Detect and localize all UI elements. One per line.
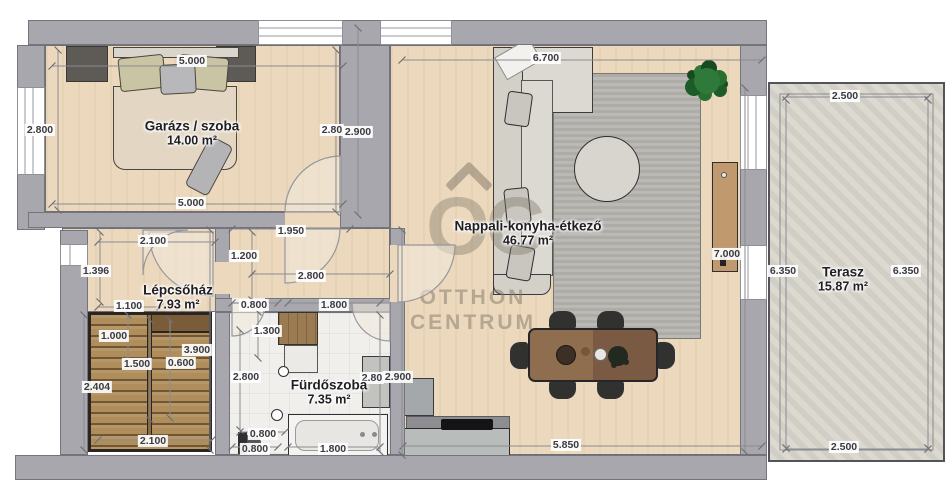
window-left-staircase bbox=[60, 244, 88, 266]
room-area: 7.35 m² bbox=[291, 393, 368, 407]
window-top-garage bbox=[258, 20, 343, 45]
staircase-rail bbox=[147, 315, 152, 435]
dimension-label: 1.950 bbox=[276, 225, 306, 237]
room-area: 46.77 m² bbox=[454, 234, 601, 248]
table-small-plate bbox=[581, 347, 590, 356]
room-area: 14.00 m² bbox=[145, 134, 240, 148]
dimension-label: 2.80 bbox=[320, 124, 344, 136]
dining-chair bbox=[510, 342, 528, 369]
door-opening-staircase bbox=[215, 262, 230, 294]
room-name: Fürdőszoba bbox=[291, 378, 368, 393]
dimension-label: 5.000 bbox=[176, 197, 206, 209]
dimension-label: 5.850 bbox=[551, 439, 581, 451]
dining-chair bbox=[549, 381, 576, 399]
room-label-garage: Garázs / szoba14.00 m² bbox=[145, 119, 240, 148]
watermark-line2: CENTRUM bbox=[398, 311, 548, 335]
room-label-bathroom: Fürdőszoba7.35 m² bbox=[291, 378, 368, 407]
floor-plan: OC OTTHON CENTRUM bbox=[0, 0, 947, 500]
dimension-label: 0.800 bbox=[248, 428, 278, 440]
sink-knob bbox=[278, 366, 289, 377]
room-name: Nappali-konyha-étkező bbox=[454, 219, 601, 234]
bed-pillow-center bbox=[159, 63, 197, 95]
terrace-door bbox=[740, 245, 767, 300]
table-centerpiece-plant bbox=[608, 346, 628, 366]
dining-chair bbox=[549, 311, 576, 329]
table-plate bbox=[556, 345, 576, 365]
dimension-label: 6.700 bbox=[531, 52, 561, 64]
dining-chair bbox=[657, 342, 675, 369]
dimension-label: 2.404 bbox=[82, 381, 112, 393]
dimension-label: 2.900 bbox=[343, 126, 373, 138]
dimension-label: 2.500 bbox=[830, 90, 860, 102]
bathtub-faucet-dot bbox=[372, 432, 377, 437]
room-name: Terasz bbox=[818, 265, 868, 280]
plant-icon bbox=[694, 68, 720, 94]
watermark-line1: OTTHON bbox=[398, 286, 548, 310]
staircase-landing bbox=[152, 315, 209, 333]
dimension-label: 3.900 bbox=[182, 344, 212, 356]
room-name: Garázs / szoba bbox=[145, 119, 240, 134]
dimension-label: 6.350 bbox=[768, 265, 798, 277]
dimension-label: 6.350 bbox=[891, 265, 921, 277]
sink-knob bbox=[271, 409, 283, 421]
cooktop bbox=[441, 419, 493, 430]
dimension-label: 2.500 bbox=[829, 441, 859, 453]
dimension-label: 2.900 bbox=[383, 371, 413, 383]
dimension-label: 2.800 bbox=[296, 270, 326, 282]
room-area: 7.93 m² bbox=[143, 298, 213, 312]
dining-chair bbox=[597, 381, 624, 399]
window-top-living bbox=[380, 20, 452, 45]
kitchen-tall-unit bbox=[403, 378, 434, 416]
room-label-living: Nappali-konyha-étkező46.77 m² bbox=[454, 219, 601, 248]
dimension-label: 0.800 bbox=[239, 299, 269, 311]
bathroom-cabinet bbox=[284, 345, 318, 373]
wardrobe-left bbox=[66, 46, 108, 82]
dimension-label: 1.500 bbox=[122, 358, 152, 370]
room-label-terrace: Terasz15.87 m² bbox=[818, 265, 868, 294]
dimension-label: 7.000 bbox=[712, 248, 742, 260]
dimension-label: 1.396 bbox=[81, 265, 111, 277]
kitchen-counter bbox=[402, 428, 510, 456]
dimension-label: 1.800 bbox=[318, 443, 348, 455]
console-knob bbox=[721, 172, 727, 178]
dimension-label: 2.100 bbox=[138, 435, 168, 447]
wall-stairs-bathroom bbox=[215, 312, 230, 455]
dimension-label: 5.000 bbox=[177, 55, 207, 67]
room-label-staircase: Lépcsőház7.93 m² bbox=[143, 283, 213, 312]
wall-bottom bbox=[15, 455, 767, 480]
dining-chair bbox=[597, 311, 624, 329]
dimension-label: 1.200 bbox=[229, 250, 259, 262]
room-area: 15.87 m² bbox=[818, 280, 868, 294]
dining-table bbox=[528, 328, 658, 382]
room-name: Lépcsőház bbox=[143, 283, 213, 298]
dimension-label: 0.800 bbox=[240, 443, 270, 455]
bathtub-faucet-dot bbox=[360, 432, 365, 437]
dimension-label: 1.000 bbox=[99, 330, 129, 342]
washing-machine bbox=[278, 312, 318, 345]
sofa-pillow-1 bbox=[504, 90, 533, 127]
dimension-label: 0.600 bbox=[166, 357, 196, 369]
dimension-label: 2.100 bbox=[138, 235, 168, 247]
dimension-label: 2.800 bbox=[231, 371, 261, 383]
coffee-table bbox=[574, 136, 640, 202]
window-right-living bbox=[740, 95, 767, 170]
dimension-label: 2.800 bbox=[25, 124, 55, 136]
dimension-label: 1.100 bbox=[114, 300, 144, 312]
table-dish bbox=[594, 348, 607, 361]
dimension-label: 1.800 bbox=[319, 299, 349, 311]
dimension-label: 1.300 bbox=[252, 325, 282, 337]
